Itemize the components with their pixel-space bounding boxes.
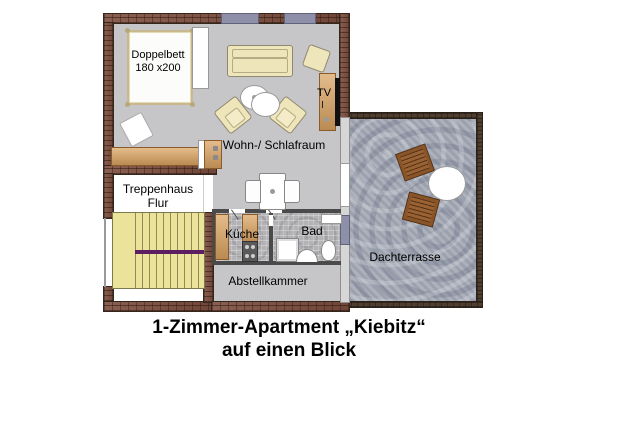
sideboard xyxy=(112,148,200,165)
burner-icon xyxy=(245,245,249,249)
caption-line-2: auf einen Blick xyxy=(69,339,509,362)
terrace-door xyxy=(341,164,349,206)
wall-stairwell-bottom xyxy=(104,302,216,311)
wall-right-upper xyxy=(340,14,349,118)
tv-board-knob-icon xyxy=(324,117,329,122)
stairs xyxy=(113,213,204,288)
bed-post-icon xyxy=(125,28,130,33)
storage-room-label: Abstellkammer xyxy=(198,274,338,288)
bathroom-window xyxy=(341,216,349,244)
burner-icon xyxy=(251,245,255,249)
stairwell-label: Treppenhaus Flur xyxy=(108,182,208,210)
bed-post-icon xyxy=(190,102,195,107)
tv-cable-mark xyxy=(322,101,323,108)
terrace-wall-right xyxy=(477,113,482,307)
dining-chair-right xyxy=(284,180,300,203)
sofa xyxy=(227,45,293,77)
burner-icon xyxy=(245,254,249,258)
dining-table xyxy=(259,173,286,210)
terrace-wall-top xyxy=(345,113,482,118)
stove-icon xyxy=(243,242,257,261)
window-top-2 xyxy=(285,14,315,23)
terrace-wall-bottom xyxy=(345,302,482,307)
double-bed: Doppelbett 180 x200 xyxy=(127,30,193,105)
terrace-label: Dachterrasse xyxy=(345,250,465,264)
bed-label: Doppelbett 180 x200 xyxy=(129,49,187,75)
tv-label: TV xyxy=(313,86,335,100)
wardrobe xyxy=(193,28,208,88)
plan-caption: 1-Zimmer-Apartment „Kiebitz“ auf einen B… xyxy=(69,316,509,362)
dining-chair-left xyxy=(245,180,261,203)
stair-landing-line xyxy=(135,250,204,254)
kitchen-bath-pass xyxy=(269,215,273,226)
wall-left xyxy=(104,23,113,166)
toilet-icon xyxy=(321,240,336,261)
cabinet-knob-icon xyxy=(213,155,218,160)
living-room-label: Wohn-/ Schlafraum xyxy=(204,138,344,152)
kitchen-label: Küche xyxy=(216,227,268,241)
bathroom-label: Bad xyxy=(296,224,328,238)
side-table-2 xyxy=(251,92,280,117)
sofa-seat xyxy=(232,58,288,73)
sofa-backrest xyxy=(232,49,288,58)
bathroom-shelf xyxy=(322,215,341,223)
caption-line-1: 1-Zimmer-Apartment „Kiebitz“ xyxy=(69,316,509,339)
terrace-table xyxy=(428,166,466,201)
table-center-dot-icon xyxy=(270,189,275,194)
window-top-1 xyxy=(222,14,258,23)
stair-opening-edge-line xyxy=(104,218,106,287)
floor-plan-image: Doppelbett 180 x200 TV xyxy=(0,0,640,427)
wall-bottom-strip xyxy=(212,302,349,311)
bed-post-icon xyxy=(125,102,130,107)
burner-icon xyxy=(251,254,255,258)
tv-screen-icon xyxy=(335,78,340,126)
